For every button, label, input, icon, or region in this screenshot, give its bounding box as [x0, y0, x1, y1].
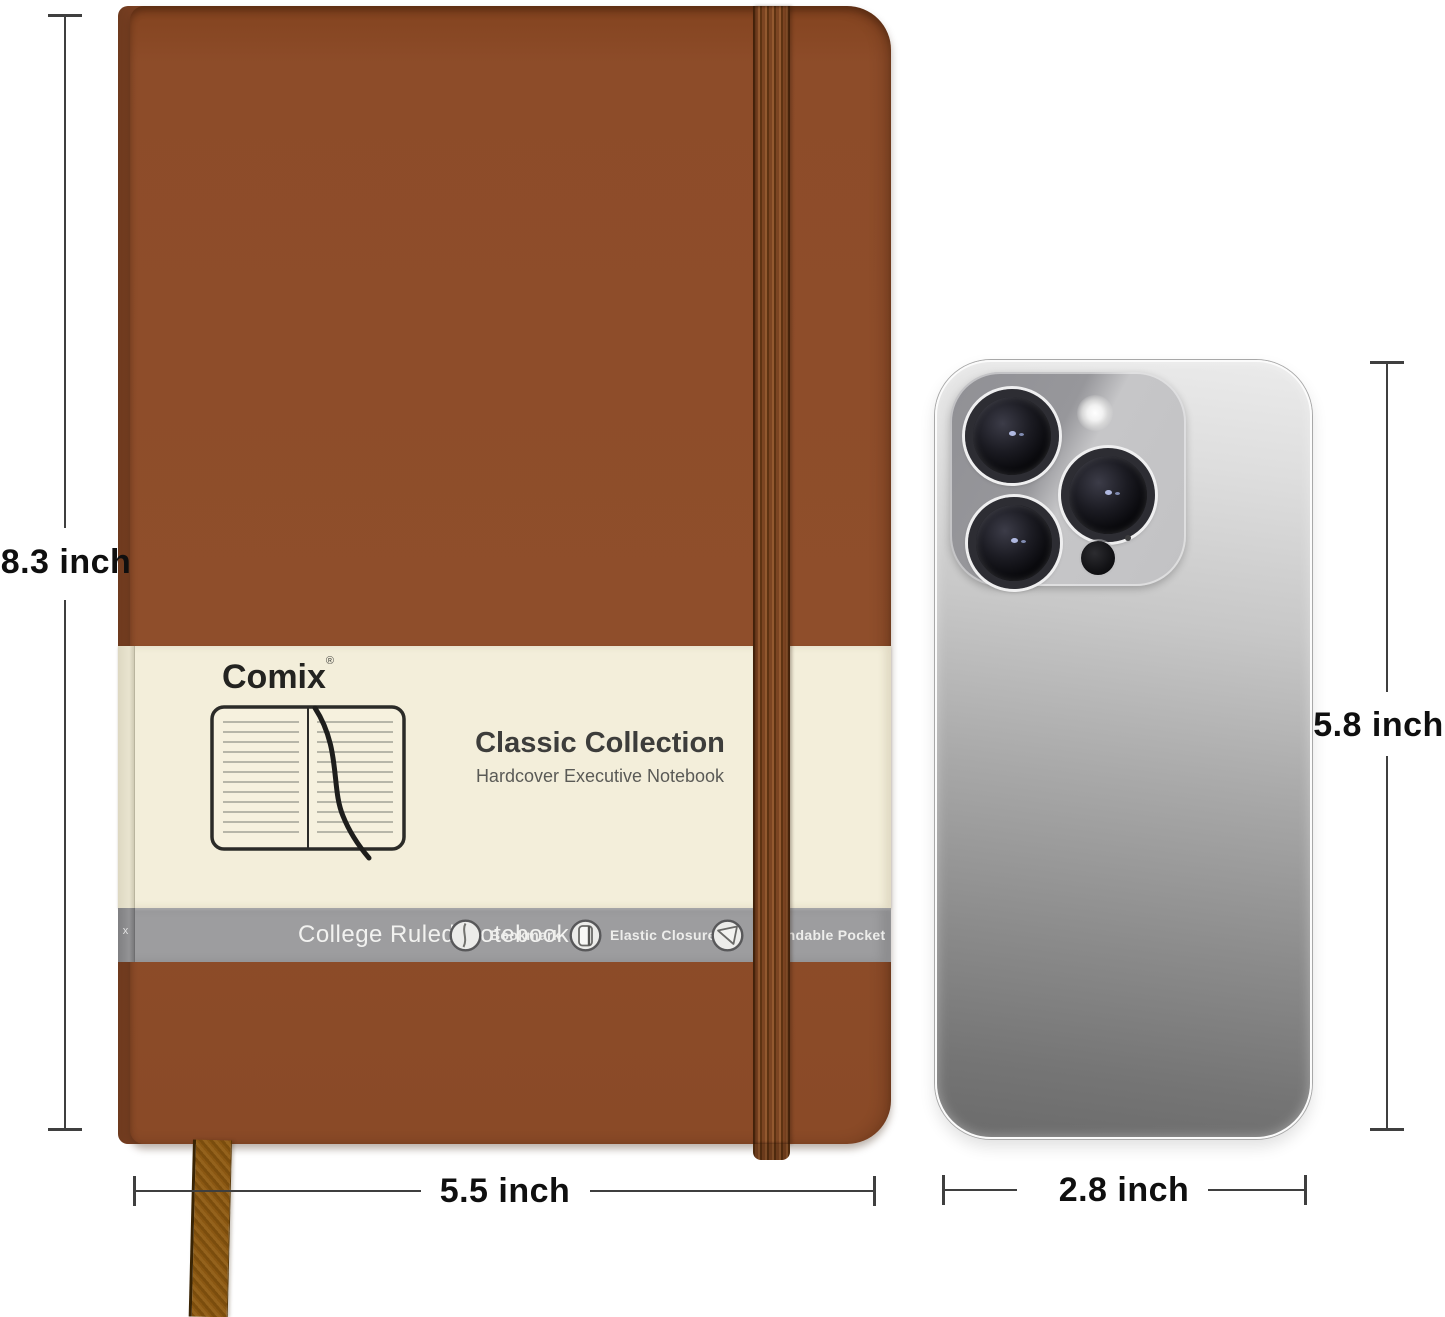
elastic-closure-icon	[569, 919, 602, 952]
notebook-height-line-upper	[64, 16, 66, 528]
product-size-comparison-image: Comix® Classic Collection Hardcover Exec…	[0, 0, 1445, 1317]
camera-flash	[1077, 395, 1113, 431]
elastic-band-bottom-wrap	[753, 1144, 790, 1160]
ribbon-bookmark	[189, 1140, 232, 1317]
camera-lens-main	[1061, 448, 1155, 542]
feature-expandable-pocket: Expandable Pocket	[711, 908, 885, 962]
phone-height-bottom-tick	[1370, 1128, 1404, 1131]
feature-label: Elastic Closure	[610, 927, 716, 943]
notebook-height-label: 8.3 inch	[0, 543, 132, 582]
product-subtitle: Hardcover Executive Notebook	[460, 766, 740, 787]
notebook-width-line-right	[590, 1190, 875, 1192]
feature-bookmark: Bookmark	[449, 908, 561, 962]
phone-width-right-tick	[1304, 1175, 1307, 1205]
camera-lens-top	[965, 389, 1059, 483]
phone-width-line-right	[1208, 1189, 1306, 1191]
phone-height-line-upper	[1386, 363, 1388, 692]
lidar-sensor	[1081, 541, 1115, 575]
notebook-width-label: 5.5 inch	[425, 1172, 585, 1211]
product-title: Classic Collection	[470, 727, 730, 760]
elastic-closure-band	[753, 6, 790, 1144]
brand-logo-text: Comix	[222, 658, 326, 696]
registered-trademark: ®	[326, 655, 334, 667]
phone-height-label: 5.8 inch	[1312, 706, 1445, 745]
pocket-icon	[711, 919, 744, 952]
phone-width-label: 2.8 inch	[1035, 1171, 1213, 1210]
phone-height-line-lower	[1386, 756, 1388, 1130]
feature-label: Bookmark	[490, 927, 561, 943]
notebook-height-bottom-tick	[48, 1128, 82, 1131]
bookmark-icon	[449, 919, 482, 952]
notebook-width-line-left	[136, 1190, 421, 1192]
brand-logo: Comix®	[222, 655, 334, 697]
notebook-height-line-lower	[64, 600, 66, 1130]
microphone-dot	[1125, 535, 1131, 541]
notebook-width-right-tick	[873, 1176, 876, 1206]
belly-band-wrap-edge	[118, 646, 135, 908]
phone-width-line-left	[945, 1189, 1017, 1191]
camera-lens-bottom	[968, 497, 1060, 589]
feature-elastic-closure: Elastic Closure	[569, 908, 716, 962]
info-band-side-text: x	[118, 925, 133, 937]
open-notebook-illustration	[205, 698, 411, 864]
